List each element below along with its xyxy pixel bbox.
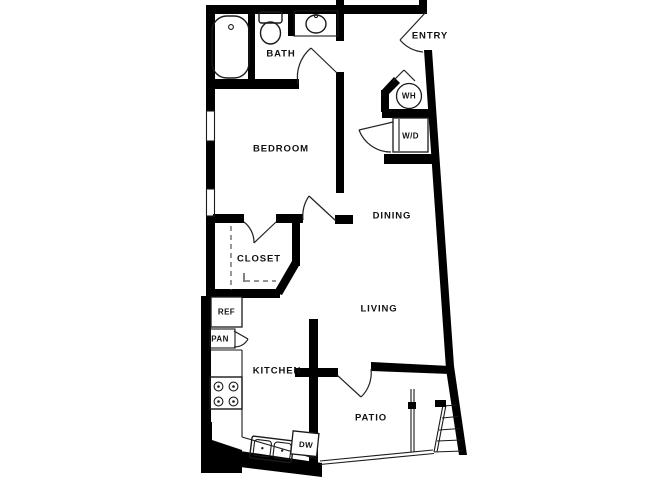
closet-door-swing-icon [244, 222, 276, 243]
toilet-icon [259, 12, 282, 44]
bedroom-door-swing-icon [303, 196, 336, 221]
entry-label: ENTRY [412, 31, 448, 42]
right-exterior-wall [424, 50, 467, 455]
bathtub-icon [212, 16, 249, 78]
bathroom-sink-icon [294, 11, 338, 36]
door-swings [234, 12, 426, 397]
patio-door-swing-icon [337, 369, 371, 397]
window-icon [207, 111, 215, 141]
closet-label: CLOSET [237, 254, 281, 265]
kitchen-label: KITCHEN [253, 366, 302, 377]
dishwasher-label: DW [299, 440, 314, 450]
exterior-and-interior-walls [201, 0, 467, 477]
newel-post [408, 402, 416, 409]
floor-plan-drawing [0, 0, 670, 480]
washer-dryer-door-swing-icon [359, 122, 393, 152]
stove-burners-icon [210, 377, 242, 409]
window-icon [207, 189, 215, 216]
patio-label: PATIO [355, 413, 387, 424]
pantry-door-swing-icon [234, 331, 248, 347]
water-heater-label: WH [402, 92, 416, 101]
bath-label: BATH [266, 49, 295, 60]
floor-plan: BATH ENTRY BEDROOM DINING CLOSET LIVING … [0, 0, 670, 480]
bottom-left-corner-wall [201, 422, 242, 473]
dining-label: DINING [373, 211, 412, 222]
bath-door-swing-icon [297, 48, 337, 84]
patio-railing [320, 389, 434, 465]
refrigerator-label: REF [218, 308, 235, 317]
living-label: LIVING [360, 304, 397, 315]
pantry-label: PAN [211, 335, 229, 344]
bedroom-label: BEDROOM [253, 144, 309, 155]
washer-dryer-label: W/D [402, 132, 419, 141]
